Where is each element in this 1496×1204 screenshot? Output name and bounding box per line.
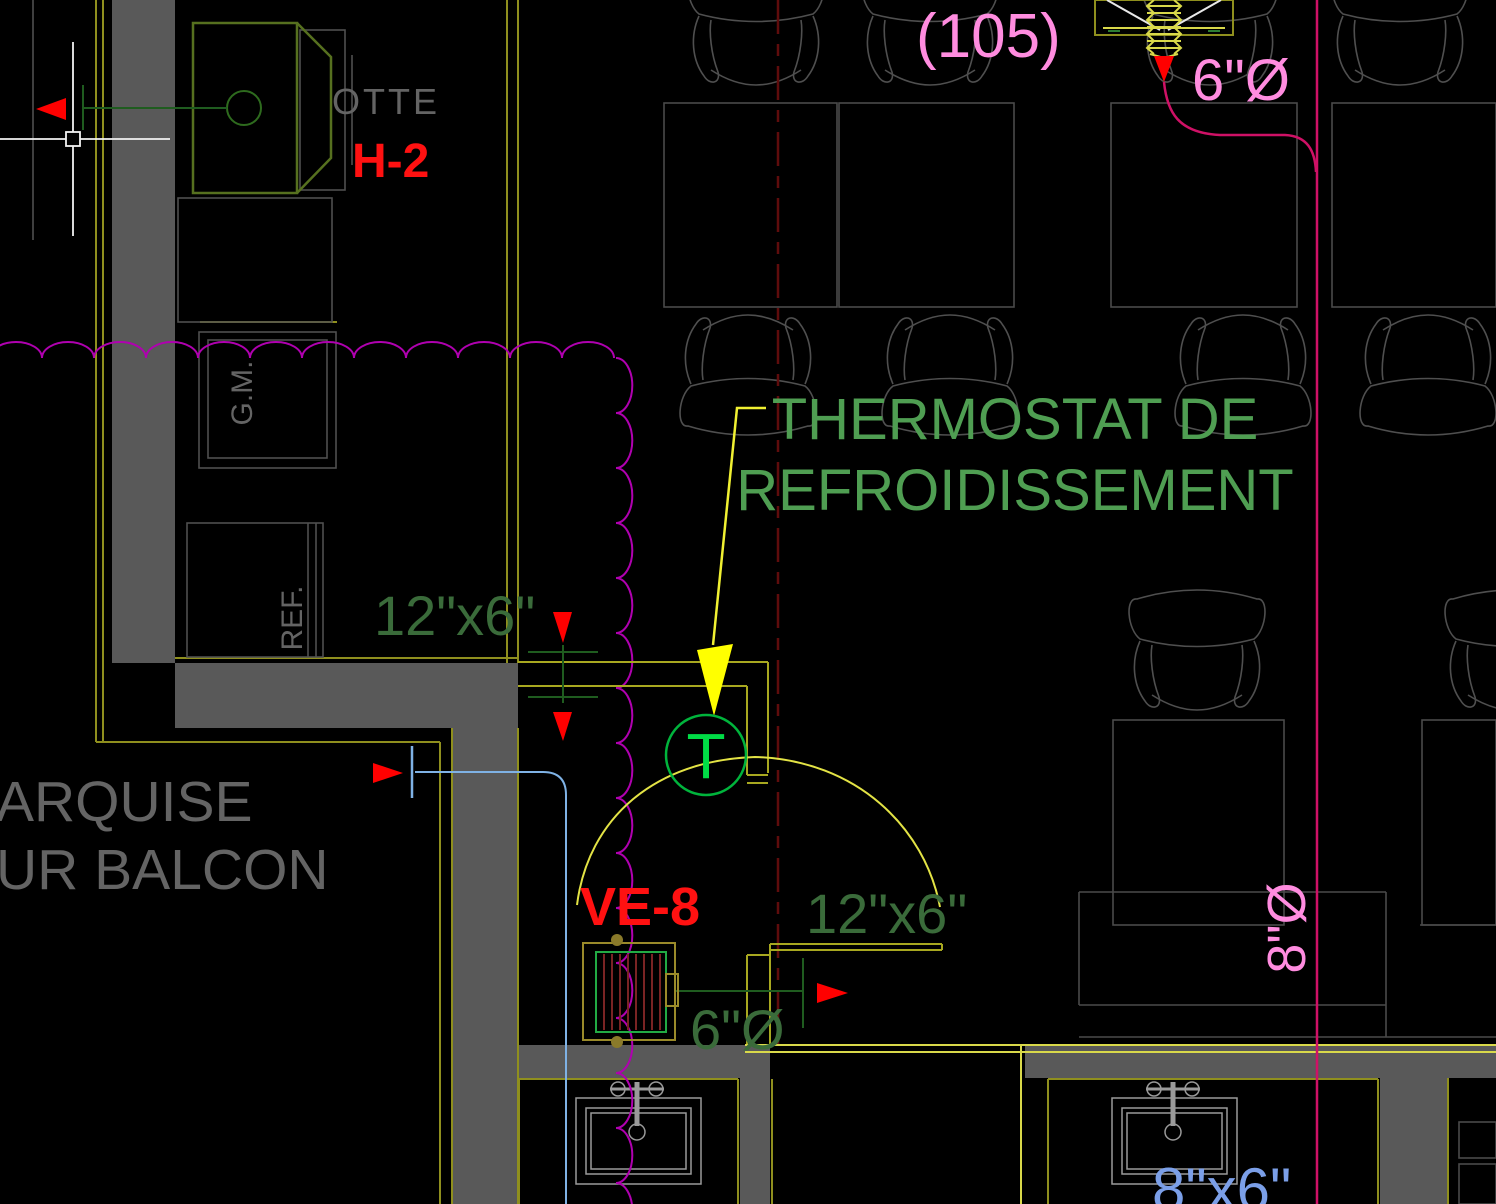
balcony-note: ARQUISE UR BALCON — [0, 768, 329, 905]
flex-duct-size-label: 6"Ø — [1192, 52, 1290, 110]
rect-duct-size-label: 8"x6" — [1152, 1160, 1291, 1204]
thermostat-note: THERMOSTAT DE REFROIDISSEMENT — [735, 385, 1295, 527]
chairs — [680, 0, 1496, 710]
round-duct-pipe — [1164, 0, 1317, 1204]
left-arrow-icon — [36, 98, 66, 120]
gm-equipment-label: G.M. — [215, 343, 271, 443]
thermostat-symbol-letter: T — [676, 719, 736, 793]
balcony-note-line2: UR BALCON — [0, 836, 329, 904]
airflow-arrow-icon — [553, 612, 572, 643]
thermostat-note-line2: REFROIDISSEMENT — [735, 456, 1295, 527]
service-arrow-icon — [373, 763, 403, 783]
exhaust-duct-size-label: 6"Ø — [690, 1002, 785, 1058]
table — [1422, 720, 1496, 925]
leader-arrowhead-icon — [697, 644, 733, 716]
hood-label: OTTE — [332, 84, 440, 120]
hood-tag: H-2 — [352, 138, 429, 186]
sink-left — [576, 1082, 701, 1184]
room-number: (105) — [916, 6, 1061, 68]
sinks — [576, 1082, 1237, 1184]
round-duct-size-label: 8"Ø — [1260, 878, 1316, 978]
fan-tag: VE-8 — [580, 880, 700, 934]
thermostat-note-line1: THERMOSTAT DE — [735, 385, 1295, 456]
ref-equipment-label: REF. — [265, 568, 321, 668]
airflow-arrow-icon — [553, 712, 572, 741]
balcony-note-line1: ARQUISE — [0, 768, 329, 836]
table — [1332, 103, 1496, 307]
table — [664, 103, 837, 307]
duct-size-upper-label: 12"x6" — [374, 588, 535, 644]
counter-box — [178, 198, 332, 322]
airflow-arrow-icon — [817, 983, 848, 1003]
cad-drawing-canvas[interactable]: OTTE H-2 (105) 6"Ø THERMOSTAT DE REFROID… — [0, 0, 1496, 1204]
table — [839, 103, 1014, 307]
duct-size-lower-label: 12"x6" — [806, 886, 967, 942]
tables — [664, 103, 1496, 1204]
supply-grille-symbol — [528, 612, 598, 741]
